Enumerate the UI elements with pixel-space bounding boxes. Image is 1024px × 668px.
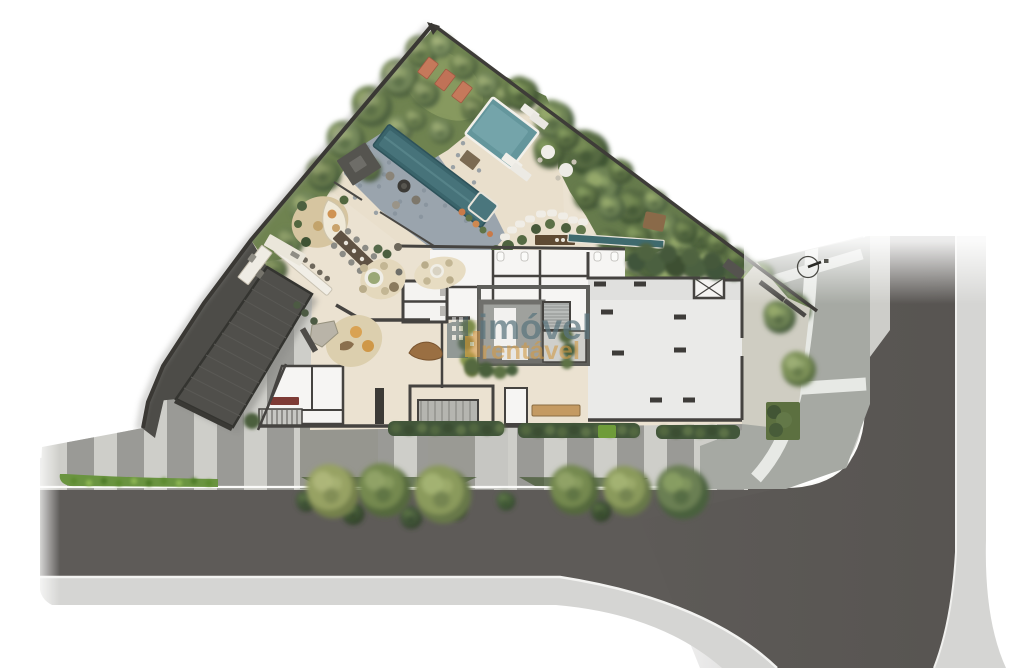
svg-text:rentável: rentável <box>481 337 580 365</box>
